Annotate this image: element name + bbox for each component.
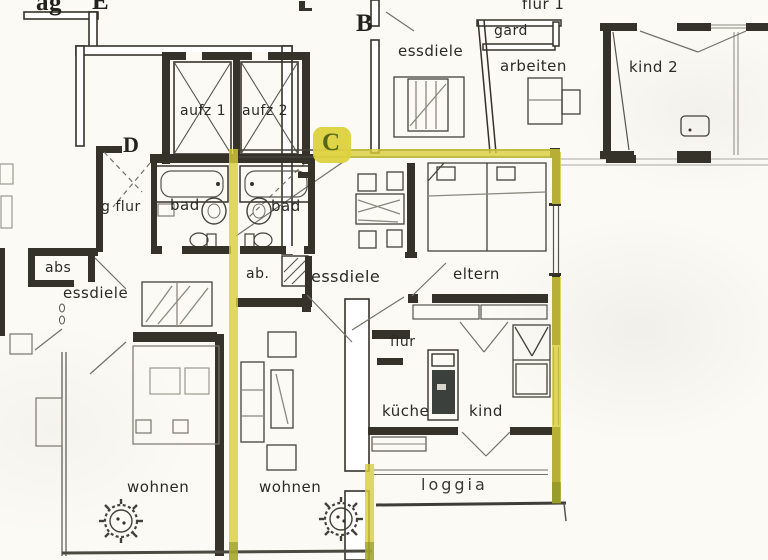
arbeiten-desk xyxy=(528,78,580,124)
hatched-shaft xyxy=(282,256,308,286)
unit-c-walls xyxy=(238,148,768,560)
room-label-essdiele-b: essdiele xyxy=(398,44,463,59)
window-eltern xyxy=(549,203,561,276)
unit-d-marker: D xyxy=(123,134,139,156)
floorplan-scan: ag E B C D flur 1 gard arbeiten kind 2 e… xyxy=(0,0,768,560)
bathroom-right xyxy=(236,163,315,307)
room-label-kind2: kind 2 xyxy=(629,60,678,75)
room-label-kueche: küche xyxy=(382,404,429,419)
kind2-walls xyxy=(600,23,768,163)
room-label-flur-c: flur xyxy=(390,335,415,349)
dimension-marks xyxy=(60,304,65,324)
loggia-edge-lines xyxy=(374,470,548,475)
room-label-eltern: eltern xyxy=(453,267,500,282)
dining-table-group xyxy=(356,172,404,248)
unit-c-marker: C xyxy=(322,130,341,155)
room-label-wohnen-d: wohnen xyxy=(127,480,189,495)
wohnen-d-furniture xyxy=(10,334,219,446)
unit-b-marker: B xyxy=(356,11,373,36)
sun-symbol-right xyxy=(319,497,363,541)
room-label-wohnen-c: wohnen xyxy=(259,480,321,495)
room-label-abs: abs xyxy=(45,261,71,275)
kind-closet xyxy=(513,325,550,397)
room-label-kind-c: kind xyxy=(469,404,503,419)
wohnen-d-left-wall xyxy=(62,352,66,556)
essdiele-b-wardrobe xyxy=(394,77,464,137)
room-label-essdiele-c: essdiele xyxy=(311,269,380,285)
room-label-ab: ab. xyxy=(246,267,269,281)
unit-b xyxy=(371,0,768,163)
bottom-cut-wall xyxy=(62,551,372,553)
corridor-door-swings xyxy=(104,152,343,236)
party-wall-line-right xyxy=(560,159,768,165)
room-label-loggia: loggia xyxy=(421,477,488,493)
eltern-closet-row xyxy=(413,305,547,319)
room-label-g-flur: g flur xyxy=(101,200,141,214)
room-label-flur1: flur 1 xyxy=(522,0,564,12)
kitchen-block xyxy=(372,350,458,451)
unit-e-marker: E xyxy=(92,0,109,14)
kind2-table xyxy=(681,116,709,136)
sun-symbol-left xyxy=(99,499,143,543)
toilet-right xyxy=(245,234,254,247)
room-label-gard: gard xyxy=(494,24,528,38)
room-label-bad-left: bad xyxy=(170,198,200,213)
cut-label-top-left: ag xyxy=(36,0,62,15)
room-label-essdiele-d: essdiele xyxy=(63,286,128,301)
room-label-arbeiten: arbeiten xyxy=(500,59,567,74)
room-label-aufz1: aufz 1 xyxy=(180,104,226,118)
eltern-double-bed xyxy=(428,163,546,251)
unit-e-walls xyxy=(24,12,292,254)
loggia-outer-edge xyxy=(376,503,566,505)
wohnen-c-sofa-group xyxy=(241,332,296,470)
gard-arbeiten-wall xyxy=(478,20,496,153)
room-label-bad-right: bad xyxy=(271,199,301,214)
room-label-aufz2: aufz 2 xyxy=(242,104,288,118)
essdiele-d-cabinet xyxy=(142,282,212,326)
floorplan-drawing xyxy=(0,0,768,560)
